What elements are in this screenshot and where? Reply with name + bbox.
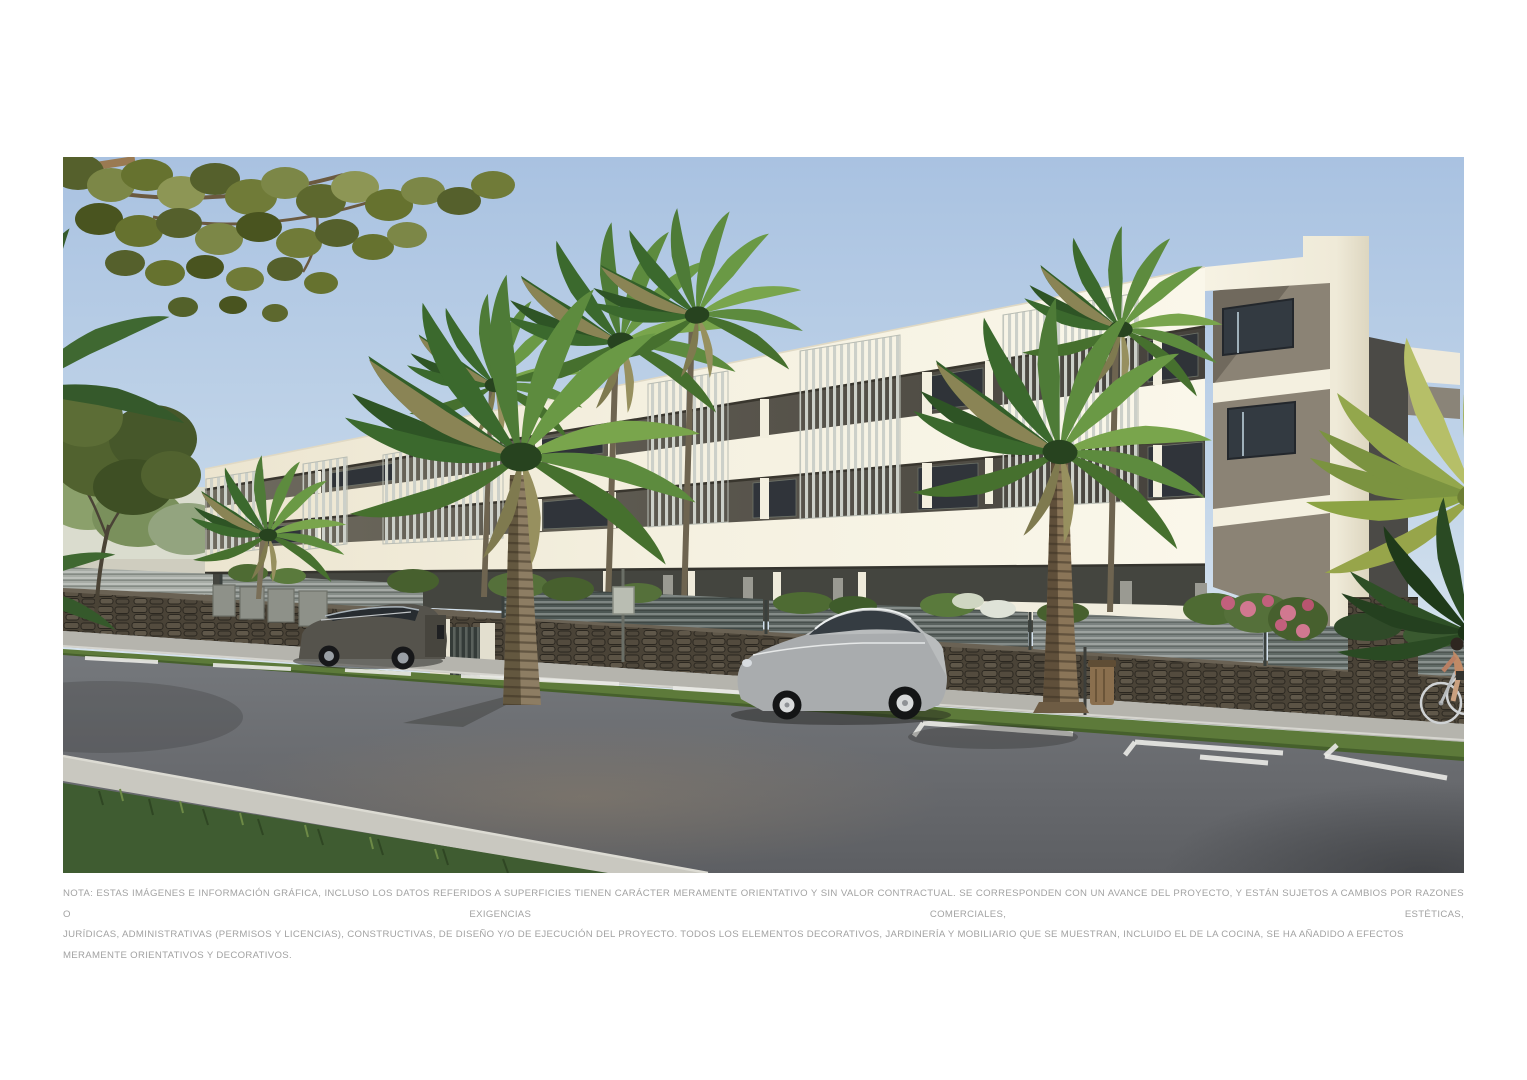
disclaimer-line-2: JURÍDICAS, ADMINISTRATIVAS (PERMISOS Y L… [63, 925, 1464, 966]
building-render-image [63, 157, 1464, 873]
disclaimer-line-1: NOTA: ESTAS IMÁGENES E INFORMACIÓN GRÁFI… [63, 884, 1464, 925]
entrance-sign [613, 587, 634, 614]
waste-bin [1088, 660, 1116, 705]
disclaimer: NOTA: ESTAS IMÁGENES E INFORMACIÓN GRÁFI… [63, 884, 1464, 966]
brochure-page: NOTA: ESTAS IMÁGENES E INFORMACIÓN GRÁFI… [0, 0, 1527, 1080]
